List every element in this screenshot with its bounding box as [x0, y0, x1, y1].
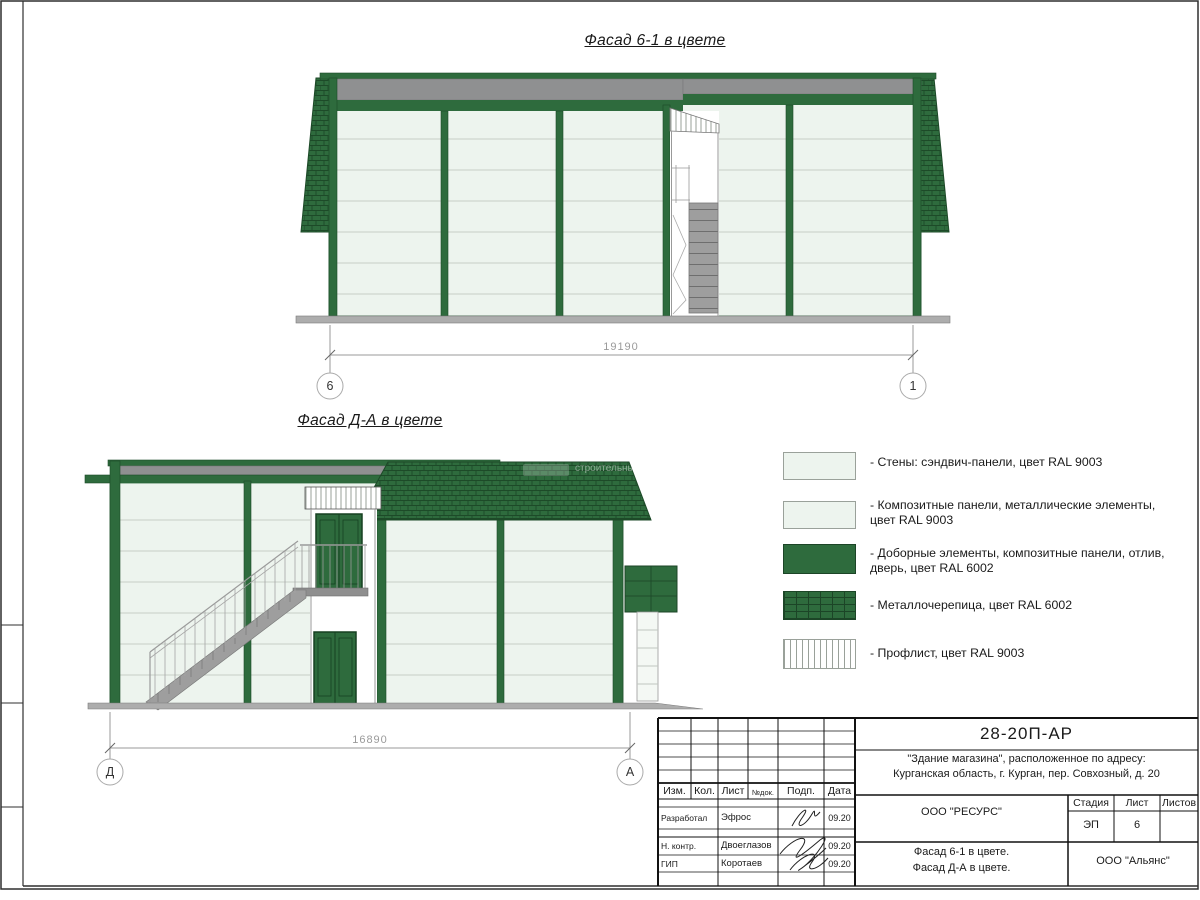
signatures — [780, 810, 828, 870]
ridge-cap — [320, 73, 936, 79]
legend-label-wall-panels: - Стены: сэндвич-панели, цвет RAL 9003 — [870, 455, 1175, 470]
org-client: ООО "Альянс" — [1068, 855, 1198, 867]
sheet-label: Лист — [1114, 797, 1160, 809]
legend-label-composite: - Композитные панели, металлические элем… — [870, 498, 1175, 528]
col-header-izm: Изм. — [658, 785, 691, 797]
legend-label-trim: - Доборные элементы, композитные панели,… — [870, 546, 1175, 576]
document-code: 28-20П-АР — [855, 724, 1198, 744]
col-header-data: Дата — [824, 785, 855, 797]
drawing-canvas — [0, 0, 1200, 900]
facade-6-1-title: Фасад 6-1 в цвете — [520, 32, 790, 50]
row-name-ncontrol: Двоеглазов — [721, 840, 772, 851]
axis-label-a: А — [618, 765, 642, 779]
col-header-ndok: №док. — [748, 788, 778, 797]
green-band-right — [683, 94, 921, 105]
right-gable-roof-end — [921, 78, 949, 232]
legend-swatch-wall-panels — [783, 452, 856, 480]
drawing-name-line2: Фасад Д-А в цвете. — [855, 862, 1068, 874]
axis-label-6: 6 — [318, 379, 342, 393]
col-header-list: Лист — [718, 785, 748, 797]
stair-flight — [689, 203, 718, 313]
dimension-16890 — [97, 712, 643, 785]
watermark-text: строительны — [575, 463, 635, 474]
signature-efros — [792, 810, 820, 826]
row-date-gip: 09.20 — [824, 859, 855, 869]
sign-pillar — [637, 612, 658, 701]
row-role-gip: ГИП — [661, 859, 678, 869]
legend-swatch-composite — [783, 501, 856, 529]
drawing-sheet: Фасад 6-1 в цвете 19190 6 1 Фасад Д-А в … — [0, 0, 1200, 900]
legend-swatch-profiled-sheet — [783, 639, 856, 669]
ground-line — [88, 703, 703, 709]
fascia-gray-right — [683, 79, 921, 94]
sheets-label: Листов — [1160, 797, 1198, 809]
facade-6-1-dimension: 19190 — [576, 341, 666, 353]
row-date-developer: 09.20 — [824, 813, 855, 823]
row-name-gip: Коротаев — [721, 858, 762, 869]
wall-panels — [329, 78, 921, 316]
project-name: "Здание магазина", расположенное по адре… — [855, 753, 1198, 765]
project-address: Курганская область, г. Курган, пер. Совх… — [855, 768, 1198, 780]
fascia-gray-left — [333, 79, 683, 100]
axis-label-1: 1 — [901, 379, 925, 393]
stage-value: ЭП — [1068, 819, 1114, 831]
dimension-19190 — [317, 325, 926, 399]
signature-lower — [780, 838, 826, 870]
col-header-podp: Подп. — [778, 785, 824, 797]
legend-swatch-metal-tile — [783, 591, 856, 620]
stage-label: Стадия — [1068, 797, 1114, 809]
row-role-developer: Разработал — [661, 813, 707, 823]
watermark-logo — [523, 464, 569, 476]
axis-label-d: Д — [98, 765, 122, 779]
row-date-ncontrol: 09.20 — [824, 841, 855, 851]
entrance-canopy-profiled — [305, 487, 381, 509]
row-role-ncontrol: Н. контр. — [661, 841, 696, 851]
lower-door — [314, 632, 356, 704]
org-designer: ООО "РЕСУРС" — [855, 806, 1068, 818]
stair-bay — [670, 108, 719, 316]
facade-da-title: Фасад Д-А в цвете — [250, 412, 490, 430]
col-header-kol: Кол. — [691, 785, 718, 797]
facade-da-dimension: 16890 — [325, 734, 415, 746]
row-name-developer: Эфрос — [721, 812, 751, 823]
green-band-left — [333, 100, 683, 111]
ground-line — [296, 316, 950, 323]
legend-label-profiled-sheet: - Профлист, цвет RAL 9003 — [870, 646, 1175, 661]
legend-label-metal-tile: - Металлочерепица, цвет RAL 6002 — [870, 598, 1175, 613]
left-gable-roof-end — [301, 78, 329, 232]
sign-box — [625, 566, 677, 701]
legend-swatch-trim — [783, 544, 856, 574]
sheet-number: 6 — [1114, 819, 1160, 831]
drawing-name-line1: Фасад 6-1 в цвете. — [855, 846, 1068, 858]
